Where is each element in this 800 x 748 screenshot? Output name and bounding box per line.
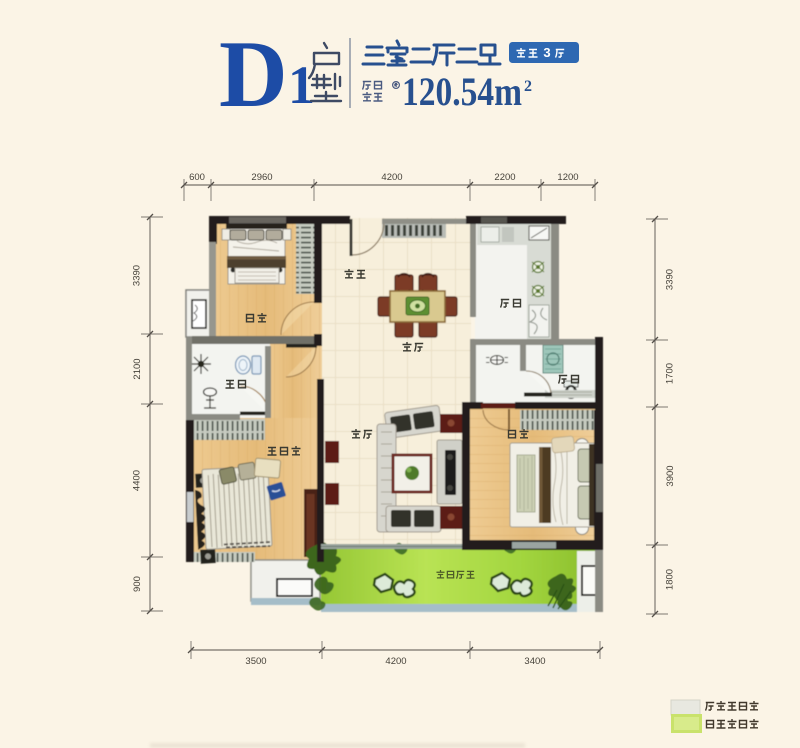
svg-text:2960: 2960 — [251, 172, 272, 183]
svg-text:4200: 4200 — [385, 656, 406, 667]
svg-text:4400: 4400 — [132, 470, 143, 491]
svg-text:3: 3 — [543, 45, 550, 60]
svg-text:3900: 3900 — [665, 465, 676, 486]
svg-text:600: 600 — [189, 172, 205, 183]
svg-text:1700: 1700 — [665, 363, 676, 384]
svg-text:1200: 1200 — [557, 172, 578, 183]
svg-text:1800: 1800 — [665, 569, 676, 590]
svg-text:900: 900 — [132, 576, 143, 592]
svg-text:3500: 3500 — [245, 656, 266, 667]
svg-text:2200: 2200 — [494, 172, 515, 183]
svg-text:D: D — [219, 21, 288, 127]
svg-text:3390: 3390 — [665, 269, 676, 290]
svg-text:120.54m: 120.54m — [402, 69, 522, 114]
svg-text:3400: 3400 — [524, 656, 545, 667]
svg-text:2100: 2100 — [132, 358, 143, 379]
svg-text:2: 2 — [524, 78, 532, 95]
svg-text:4200: 4200 — [381, 172, 402, 183]
svg-text:3390: 3390 — [132, 265, 143, 286]
